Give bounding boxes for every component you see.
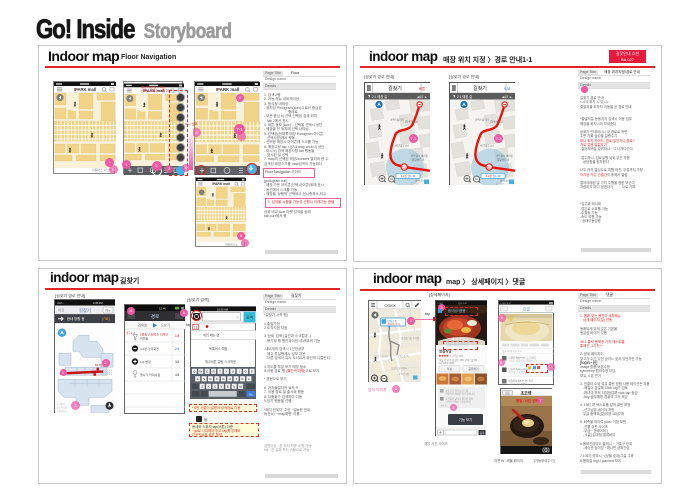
svg-text:K: K xyxy=(241,377,243,381)
svg-text:길찾기: 길찾기 xyxy=(79,307,91,314)
svg-text:◀13 ▲: ◀13 ▲ xyxy=(417,95,427,99)
svg-text:12:46: 12:46 xyxy=(159,306,166,310)
svg-text:02-6002-3031: 02-6002-3031 xyxy=(439,362,455,365)
svg-text:B: B xyxy=(227,385,229,389)
svg-text:기능 보기: 기능 보기 xyxy=(459,417,472,422)
svg-text:도보: 도보 xyxy=(504,87,510,91)
svg-text:W: W xyxy=(199,370,202,374)
svg-text:도보기: 도보기 xyxy=(161,323,170,328)
svg-text:2.1 매장 길: 2.1 매장 길 xyxy=(457,94,472,99)
svg-text:1시 방향: 1시 방향 xyxy=(140,359,151,364)
svg-text:H: H xyxy=(229,377,231,381)
svg-text:여러 메뉴 명: 여러 메뉴 명 xyxy=(203,333,220,338)
svg-text:오늘도 맛있게 잘 먹었습니다: 오늘도 맛있게 잘 먹었습니다 xyxy=(509,359,538,363)
svg-text:검색영: 검색영 xyxy=(138,323,147,328)
svg-text:⠿ SKT 4:27: ⠿ SKT 4:27 xyxy=(500,302,512,305)
svg-text:경로: 경로 xyxy=(151,313,159,319)
svg-text:등록: 등록 xyxy=(480,430,485,434)
svg-text:길찾기: 길찾기 xyxy=(473,85,487,92)
svg-text:Y: Y xyxy=(225,370,227,374)
svg-text:음식점 보기: 음식점 보기 xyxy=(388,322,400,326)
svg-text:포스코사거리: 포스코사거리 xyxy=(375,354,388,358)
svg-text:사진이 너무 예뻐요: 사진이 너무 예뻐요 xyxy=(509,382,529,386)
svg-text:COEX: COEX xyxy=(384,303,396,308)
svg-text:1/4: 1/4 xyxy=(175,334,180,338)
svg-text:13: 13 xyxy=(194,326,198,330)
svg-text:셔틀버스 &: 셔틀버스 & xyxy=(225,243,238,247)
svg-text:U: U xyxy=(232,370,234,374)
svg-text:저장: 저장 xyxy=(447,367,453,371)
svg-text:셔틀버스 &: 셔틀버스 & xyxy=(92,167,106,172)
svg-text:체크버튼 열림 스크박운: 체크버튼 열림 스크박운 xyxy=(205,359,236,364)
svg-text:P: P xyxy=(251,370,253,374)
svg-text:단골: 단골 xyxy=(523,307,530,312)
svg-text:N: N xyxy=(233,385,235,389)
svg-text:3-4번가 우회전: 3-4번가 우회전 xyxy=(140,346,159,351)
svg-text:메뉴: 메뉴 xyxy=(105,307,111,312)
svg-text:◀13 ▲: ◀13 ▲ xyxy=(502,95,512,99)
svg-text:olleh ··: olleh ·· xyxy=(57,301,65,305)
svg-text:행사가 커피서점: 행사가 커피서점 xyxy=(140,372,160,377)
svg-text:삼성역 무역센터: 삼성역 무역센터 xyxy=(391,366,407,370)
svg-text:S: S xyxy=(203,377,205,381)
svg-text:Go: Go xyxy=(249,392,253,396)
svg-text:✕: ✕ xyxy=(236,316,239,320)
svg-text:코엑스몰 축: 코엑스몰 축 xyxy=(397,354,409,358)
svg-text:X: X xyxy=(208,385,210,389)
svg-text:A: A xyxy=(197,377,199,381)
svg-text:검색: 검색 xyxy=(246,315,253,320)
svg-text:커피숍: 커피숍 xyxy=(140,336,149,341)
svg-text:초코렛: 초코렛 xyxy=(520,389,531,395)
svg-text:현내 방향 정: 현내 방향 정 xyxy=(67,316,84,321)
svg-text:4:45 PM: 4:45 PM xyxy=(93,301,103,305)
svg-text:Z: Z xyxy=(201,385,203,389)
svg-text:T: T xyxy=(219,370,221,374)
svg-text:길찾기: 길찾기 xyxy=(388,85,402,92)
svg-text:버튼: 버튼 xyxy=(419,86,425,91)
svg-text:리뷰 128: 리뷰 128 xyxy=(453,354,463,358)
svg-text:F: F xyxy=(216,377,218,381)
svg-text:뒤로: 뒤로 xyxy=(505,391,510,395)
svg-text:공유하기: 공유하기 xyxy=(468,367,479,371)
svg-text:10:35 AM: 10:35 AM xyxy=(217,307,228,311)
svg-text:2/4: 2/4 xyxy=(175,347,180,351)
svg-text:(73E): (73E) xyxy=(102,317,110,321)
svg-text:이전: 이전 xyxy=(58,308,64,313)
svg-text:4/4: 4/4 xyxy=(175,373,180,377)
svg-text:E: E xyxy=(206,370,208,374)
svg-text:V: V xyxy=(220,385,222,389)
svg-text:2.1 매장 길: 2.1 매장 길 xyxy=(372,94,387,99)
svg-text:댓글 12개 모두 보기: 댓글 12개 모두 보기 xyxy=(502,349,522,353)
svg-text:2.5전시장: 2.5전시장 xyxy=(399,372,410,376)
svg-text:목록버스 예정: 목록버스 예정 xyxy=(209,346,228,351)
svg-text:3/4: 3/4 xyxy=(175,360,180,364)
svg-text:삼성몰디컬 무역센: 삼성몰디컬 무역센 xyxy=(401,336,419,340)
